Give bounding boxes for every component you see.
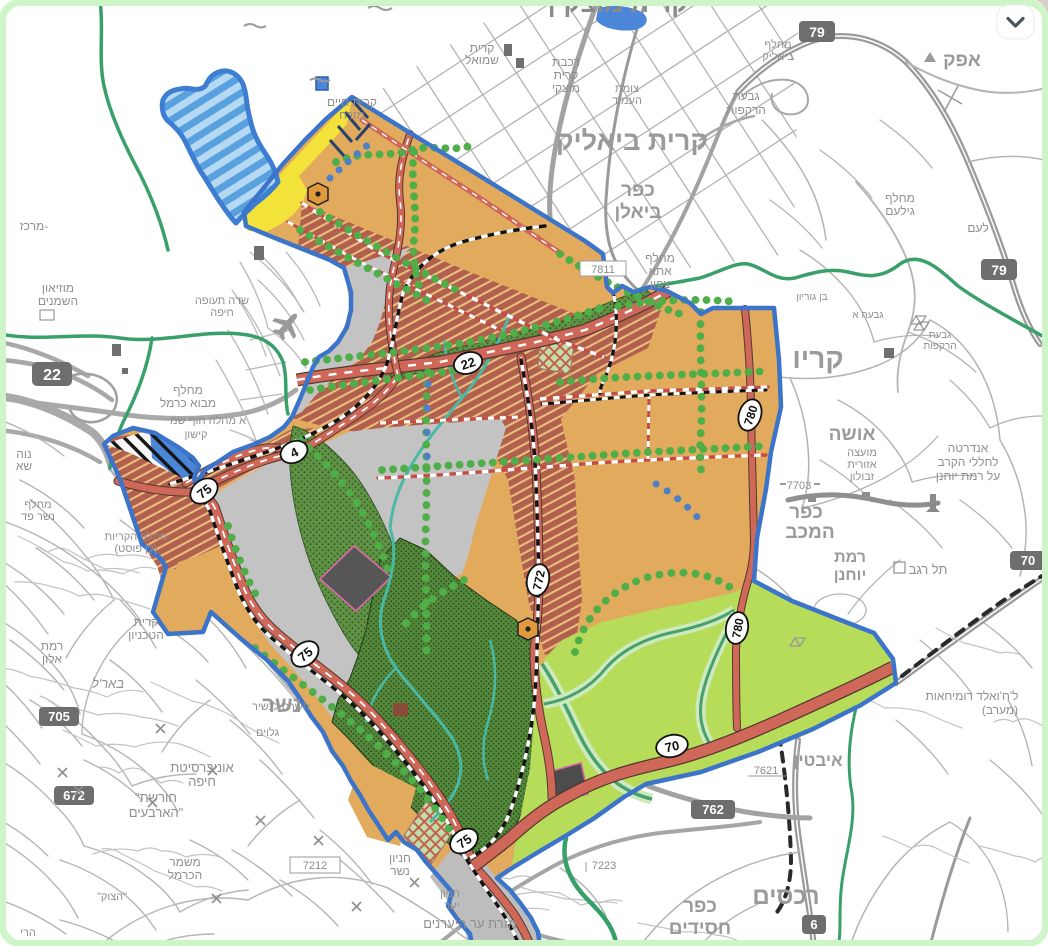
svg-text:קרית ביאליק: קרית ביאליק bbox=[556, 126, 708, 156]
svg-text:רמת: רמת bbox=[41, 639, 64, 653]
svg-text:כפר: כפר bbox=[683, 896, 717, 917]
svg-text:יער: יער bbox=[444, 900, 459, 912]
svg-text:השמנים: השמנים bbox=[38, 294, 78, 308]
svg-text:ביאליק: ביאליק bbox=[762, 50, 794, 63]
svg-text:באר'ל: באר'ל bbox=[92, 676, 124, 691]
svg-text:חניון: חניון bbox=[389, 851, 411, 865]
svg-text:איבטין: איבטין bbox=[793, 751, 843, 770]
svg-text:הרי: הרי bbox=[20, 927, 36, 939]
svg-text:קריו: קריו bbox=[792, 343, 843, 374]
svg-text:מחלף: מחלף bbox=[173, 383, 203, 397]
svg-text:העמוד: העמוד bbox=[612, 95, 642, 107]
svg-text:חיפה: חיפה bbox=[188, 774, 216, 789]
svg-text:מועצה: מועצה bbox=[847, 447, 877, 459]
svg-text:צפון: צפון bbox=[650, 277, 671, 291]
svg-text:22: 22 bbox=[43, 367, 61, 384]
svg-text:גלוים: גלוים bbox=[256, 726, 280, 739]
svg-text:(מערב): (מערב) bbox=[982, 703, 1018, 717]
svg-text:מבוא כרמל: מבוא כרמל bbox=[160, 396, 216, 410]
svg-text:כפר: כפר bbox=[621, 180, 655, 201]
svg-text:רמת: רמת bbox=[834, 549, 866, 566]
svg-text:משמר: משמר bbox=[169, 855, 201, 869]
svg-text:6: 6 bbox=[810, 917, 817, 932]
svg-text:79: 79 bbox=[991, 262, 1007, 278]
svg-text:חסידים: חסידים bbox=[669, 918, 731, 939]
svg-text:7212: 7212 bbox=[303, 860, 327, 872]
svg-text:7811: 7811 bbox=[591, 264, 615, 276]
svg-text:כפר: כפר bbox=[789, 502, 823, 523]
svg-text:רכבת: רכבת bbox=[552, 55, 580, 69]
svg-text:המכב: המכב bbox=[785, 522, 834, 543]
svg-text:הרקפות: הרקפות bbox=[726, 103, 766, 117]
svg-text:7621: 7621 bbox=[754, 765, 778, 777]
svg-text:יוחנן: יוחנן bbox=[834, 567, 867, 584]
svg-text:מחלף: מחלף bbox=[885, 191, 915, 205]
svg-text:קרית חיים: קרית חיים bbox=[327, 95, 377, 109]
svg-text:לחללי הקרב: לחללי הקרב bbox=[938, 455, 999, 469]
svg-text:גבעת: גבעת bbox=[732, 89, 759, 103]
svg-text:מחלף: מחלף bbox=[645, 251, 675, 265]
svg-text:(לן פוסט): (לן פוסט) bbox=[114, 542, 157, 555]
svg-text:הרקפות: הרקפות bbox=[923, 341, 956, 352]
svg-text:70: 70 bbox=[663, 738, 680, 756]
svg-text:ביאלן: ביאלן bbox=[614, 202, 661, 223]
svg-text:שא: שא bbox=[16, 459, 33, 473]
svg-text:762: 762 bbox=[702, 802, 724, 817]
svg-text:שדה תעופה: שדה תעופה bbox=[195, 295, 249, 307]
svg-text:705: 705 bbox=[48, 709, 70, 724]
svg-text:אפק: אפק bbox=[943, 50, 981, 71]
svg-text:גילעם: גילעם bbox=[885, 204, 915, 218]
svg-text:אושה: אושה bbox=[829, 424, 876, 445]
svg-text:קישון: קישון bbox=[184, 429, 207, 441]
svg-text:שמואל: שמואל bbox=[465, 53, 499, 67]
svg-text:זבולון: זבולון bbox=[850, 470, 875, 483]
svg-text:חניון: חניון bbox=[440, 888, 460, 900]
svg-text:א מחלה חוף שמ: א מחלה חוף שמ bbox=[170, 414, 246, 427]
svg-text:79: 79 bbox=[809, 24, 825, 40]
svg-text:"חורשת: "חורשת bbox=[135, 790, 177, 805]
svg-text:הטכניון: הטכניון bbox=[128, 628, 164, 642]
svg-text:מחלף: מחלף bbox=[764, 38, 791, 51]
svg-text:צומת: צומת bbox=[615, 83, 639, 95]
svg-text:נשר: נשר bbox=[390, 864, 410, 878]
svg-text:מחלף הקריות: מחלף הקריות bbox=[105, 530, 168, 543]
svg-text:"הצוק": "הצוק" bbox=[97, 891, 127, 903]
svg-text:תל רגב: תל רגב bbox=[909, 562, 948, 577]
svg-text:מוצקי: מוצקי bbox=[552, 81, 580, 95]
svg-text:מזרח: מזרח bbox=[339, 108, 365, 122]
svg-text:אנדרטה: אנדרטה bbox=[948, 441, 989, 455]
svg-text:אזורית: אזורית bbox=[847, 459, 877, 471]
svg-text:מזרת ער היערנים: מזרת ער היערנים bbox=[423, 916, 517, 931]
svg-text:672: 672 bbox=[63, 788, 85, 803]
svg-text:לעם: לעם bbox=[967, 221, 988, 235]
svg-text:7223: 7223 bbox=[592, 860, 616, 872]
svg-text:רכסים: רכסים bbox=[752, 883, 819, 910]
svg-text:7703: 7703 bbox=[787, 480, 811, 492]
svg-text:מוזיאון: מוזיאון bbox=[42, 281, 74, 295]
svg-text:קרית: קרית bbox=[134, 615, 159, 629]
svg-text:הכרמל: הכרמל bbox=[168, 868, 202, 882]
svg-text:חיפה: חיפה bbox=[210, 307, 234, 319]
svg-text:אתא: אתא bbox=[648, 264, 672, 278]
svg-text:אלון: אלון bbox=[42, 652, 62, 666]
svg-text:גבעה א: גבעה א bbox=[852, 310, 883, 321]
svg-text:השרם לנשיר: השרם לנשיר bbox=[252, 700, 310, 713]
svg-text:על רמת יוחנן: על רמת יוחנן bbox=[936, 469, 1001, 483]
svg-text:מחלף: מחלף bbox=[24, 498, 51, 511]
svg-text:גבעת: גבעת bbox=[929, 330, 952, 341]
svg-text:נשר פד: נשר פד bbox=[21, 511, 55, 523]
svg-text:מרכז-: מרכז- bbox=[20, 219, 48, 233]
svg-text:ל'ח'ואלד רומיחאות: ל'ח'ואלד רומיחאות bbox=[925, 689, 1018, 703]
svg-text:בן גוריון: בן גוריון bbox=[796, 292, 827, 303]
svg-text:אוניברסיטת: אוניברסיטת bbox=[170, 760, 233, 775]
svg-text:קרית: קרית bbox=[554, 68, 579, 82]
svg-text:70: 70 bbox=[1021, 553, 1035, 568]
